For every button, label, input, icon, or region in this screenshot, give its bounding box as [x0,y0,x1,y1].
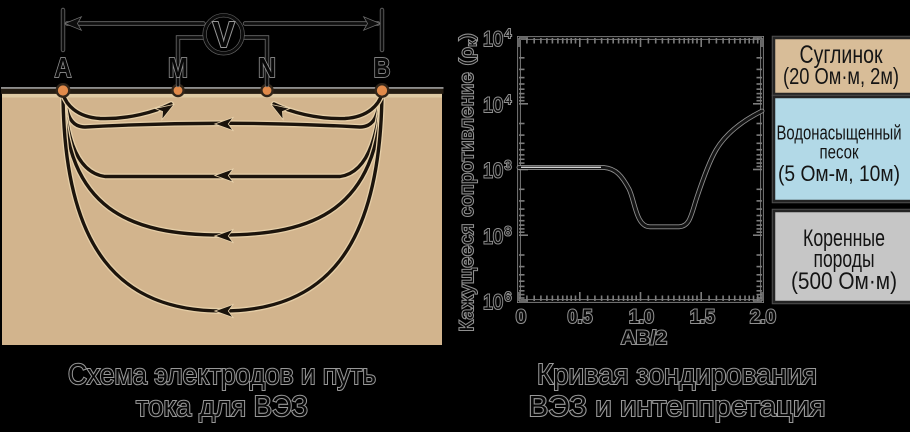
svg-text:4: 4 [505,92,512,107]
svg-text:10: 10 [483,94,503,117]
svg-text:8: 8 [505,223,512,238]
svg-text:(20 Ом·м, 2м): (20 Ом·м, 2м) [783,63,899,89]
svg-text:Кажущееся сопротивление (ρк): Кажущееся сопротивление (ρк) [457,33,479,332]
svg-text:10: 10 [483,160,503,183]
svg-text:ВЭЗ и интеппретация: ВЭЗ и интеппретация [529,391,826,423]
svg-text:10: 10 [483,28,503,51]
svg-text:6: 6 [505,289,512,304]
svg-text:N: N [258,52,276,83]
svg-text:1.5: 1.5 [690,307,715,328]
svg-text:Схема электродов и путь: Схема электродов и путь [68,359,376,391]
svg-text:тока для ВЭЗ: тока для ВЭЗ [136,391,308,423]
svg-text:1.0: 1.0 [629,307,654,328]
svg-text:0.5: 0.5 [568,307,593,328]
svg-text:(500 Ом·м): (500 Ом·м) [791,268,897,295]
svg-text:0: 0 [516,307,527,328]
svg-text:(5 Ом-м, 10м): (5 Ом-м, 10м) [778,161,900,186]
svg-text:Кривая зондирования: Кривая зондирования [537,359,817,391]
svg-text:3: 3 [505,158,512,173]
svg-text:Водонасыщенный: Водонасыщенный [777,123,902,145]
svg-text:B: B [374,52,391,83]
svg-text:2.0: 2.0 [750,307,776,328]
svg-text:10: 10 [483,291,503,314]
svg-text:V: V [213,14,235,55]
svg-text:M: M [168,52,188,83]
svg-text:АВ/2: АВ/2 [621,328,667,349]
svg-text:10: 10 [483,225,503,248]
svg-text:4: 4 [505,26,512,41]
svg-text:A: A [55,52,72,83]
